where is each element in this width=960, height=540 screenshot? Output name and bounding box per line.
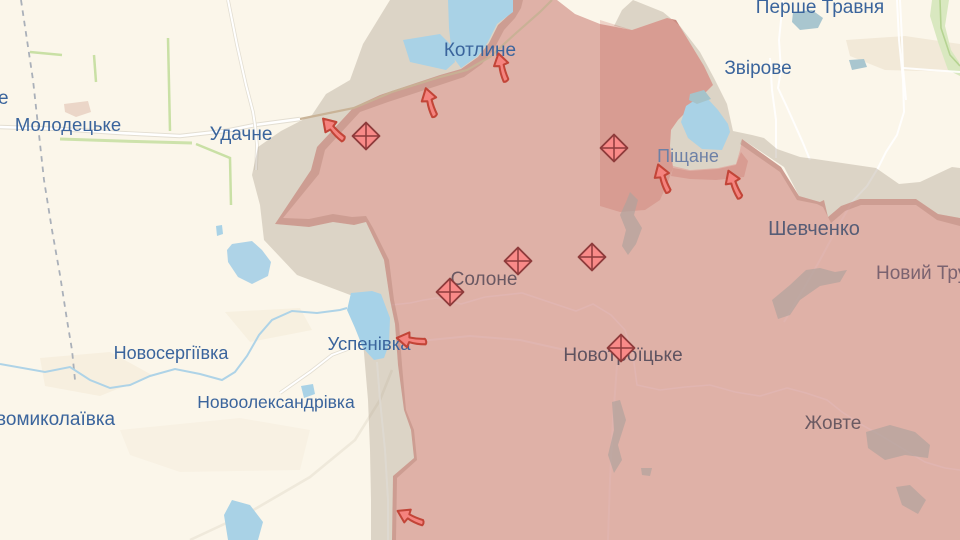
svg-text:вомиколаївка: вомиколаївка (0, 409, 116, 430)
svg-text:Шевченко: Шевченко (768, 218, 860, 240)
svg-text:Удачне: Удачне (210, 124, 273, 145)
svg-text:Новосергіївка: Новосергіївка (114, 343, 230, 363)
svg-text:Молодецьке: Молодецьке (15, 114, 121, 135)
svg-text:Новий Труд: Новий Труд (876, 263, 960, 284)
svg-text:Піщане: Піщане (657, 146, 719, 166)
svg-text:Перше Травня: Перше Травня (756, 0, 884, 18)
svg-text:е: е (0, 88, 9, 109)
svg-text:Жовте: Жовте (805, 413, 862, 434)
svg-text:Новоолександрівка: Новоолександрівка (197, 392, 355, 412)
svg-text:Котлине: Котлине (444, 40, 516, 61)
svg-text:Звірове: Звірове (724, 58, 791, 79)
svg-text:Солоне: Солоне (451, 269, 518, 290)
